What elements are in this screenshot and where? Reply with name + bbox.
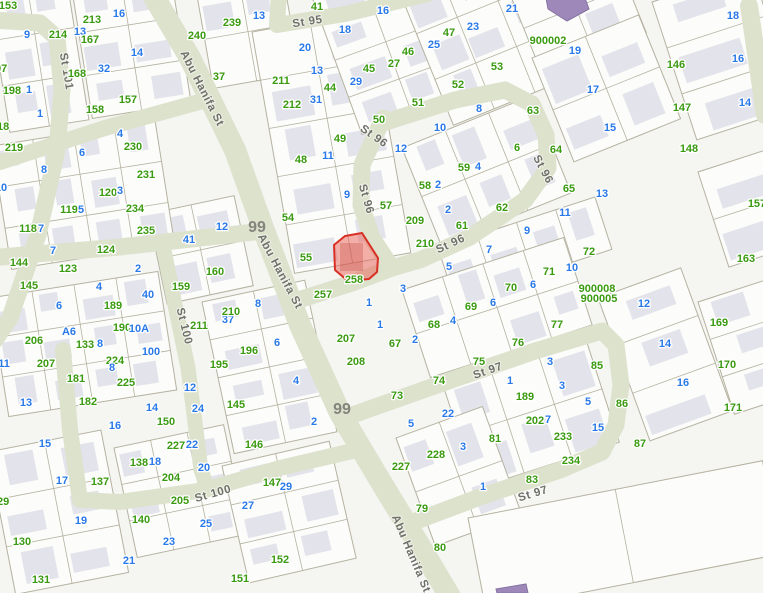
parcel-label: 3	[117, 185, 123, 197]
parcel-label: 100	[142, 346, 160, 358]
parcel-label: 18	[339, 24, 351, 36]
parcel-label: 41	[311, 1, 323, 13]
parcel-label: 72	[583, 246, 595, 258]
parcel-label: 45	[363, 63, 375, 75]
parcel-label: 8	[41, 164, 47, 176]
parcel-label: 147	[263, 477, 281, 489]
parcel-label: 14	[739, 97, 752, 109]
parcel-label: 6	[530, 279, 536, 291]
parcel-label: 212	[283, 99, 301, 111]
parcel-label: 10	[434, 122, 446, 134]
parcel-label: 27	[242, 500, 254, 512]
parcel-label: 9	[524, 225, 530, 237]
building-footprint	[15, 186, 37, 211]
parcel-label: 25	[428, 39, 440, 51]
parcel-label: 4	[450, 315, 457, 327]
parcel-label: 3	[400, 283, 406, 295]
parcel-label: 234	[562, 455, 581, 467]
parcel-label: 68	[428, 319, 440, 331]
parcel-label: 46	[402, 46, 414, 58]
parcel-label: 11	[322, 150, 334, 162]
parcel-label: 7	[38, 223, 44, 235]
parcel-label: 189	[104, 300, 122, 312]
parcel-label: 4	[117, 128, 124, 140]
parcel-label: 196	[240, 345, 258, 357]
parcel-label: 86	[616, 398, 628, 410]
parcel-label: 29	[350, 76, 362, 88]
parcel-label: 151	[231, 573, 249, 585]
parcel-label: 44	[324, 82, 337, 94]
parcel-label: 25	[200, 518, 212, 530]
parcel-label: 6	[79, 147, 85, 159]
parcel-label: 900005	[581, 293, 618, 305]
parcel-label: 1	[37, 108, 43, 120]
parcel-label: 120	[99, 187, 117, 199]
parcel-label: 146	[667, 59, 685, 71]
parcel-label: 7	[486, 244, 492, 256]
parcel-label: 15	[604, 122, 616, 134]
parcel-label: 2	[435, 179, 441, 191]
parcel-label: 207	[337, 333, 355, 345]
parcel-label: 19	[569, 45, 581, 57]
parcel-label: 24	[192, 403, 205, 415]
parcel-label: 158	[86, 104, 104, 116]
map-svg: St 101Abu Hanifa StAbu Hanifa StAbu Hani…	[0, 0, 763, 593]
parcel-label: 5	[585, 396, 591, 408]
parcel-label: 10	[0, 182, 7, 194]
parcel-label: 210	[416, 238, 434, 250]
parcel-label: 152	[271, 554, 289, 566]
parcel-label: 147	[673, 102, 691, 114]
parcel-label: 6	[56, 300, 62, 312]
parcel-label: 130	[13, 536, 31, 548]
parcel-label: 208	[347, 356, 365, 368]
building-footprint	[151, 72, 184, 99]
parcel-label: 63	[527, 105, 539, 117]
parcel-label: 80	[434, 542, 446, 554]
parcel-label: 170	[718, 359, 736, 371]
parcel-label: 54	[282, 212, 295, 224]
parcel-label: 230	[124, 141, 142, 153]
parcel-label: 5	[446, 261, 452, 273]
parcel-label: 124	[97, 244, 116, 256]
parcel-label: 11	[559, 207, 571, 219]
parcel-label: 29	[280, 481, 292, 493]
parcel-label: 5	[78, 204, 84, 216]
parcel-label: 157	[119, 94, 137, 106]
parcel-label: 181	[67, 373, 85, 385]
parcel-label: 14	[146, 402, 159, 414]
parcel-label: 41	[183, 234, 195, 246]
parcel-label: 167	[81, 34, 99, 46]
parcel-label: 16	[377, 5, 389, 17]
building-footprint	[5, 49, 36, 80]
parcel-label: 19	[75, 515, 87, 527]
parcel-label: 85	[591, 360, 603, 372]
parcel-label: 195	[210, 359, 228, 371]
parcel-label: 258	[345, 274, 363, 286]
parcel-label: 77	[551, 319, 563, 331]
parcel-label: 206	[25, 335, 43, 347]
parcel-label: 8	[109, 362, 115, 374]
parcel-label: 218	[0, 121, 9, 133]
map-canvas[interactable]: St 101Abu Hanifa StAbu Hanifa StAbu Hani…	[0, 0, 763, 593]
parcel-label: 71	[543, 266, 555, 278]
parcel-label: 75	[473, 356, 485, 368]
parcel-label: 15	[592, 422, 604, 434]
parcel-label: 1	[366, 297, 372, 309]
parcel-label: 171	[724, 402, 742, 414]
parcel-label: 15	[39, 438, 51, 450]
parcel-label: 16	[677, 377, 689, 389]
parcel-label: 53	[491, 61, 503, 73]
parcel-label: 138	[130, 457, 148, 469]
parcel-label: 21	[123, 555, 135, 567]
parcel-label: 12	[216, 221, 228, 233]
building-footprint	[4, 449, 38, 485]
parcel-label: 133	[76, 339, 94, 351]
parcel-label: 74	[433, 375, 446, 387]
parcel-label: 13	[253, 10, 265, 22]
parcel-label: 189	[516, 391, 534, 403]
parcel-label: 8	[97, 338, 103, 350]
parcel-label: 12	[395, 143, 407, 155]
parcel-label: 6	[490, 297, 496, 309]
parcel-label: 73	[391, 390, 403, 402]
parcel-label: 50	[373, 114, 385, 126]
parcel-label: 22	[186, 439, 198, 451]
parcel-label: 4	[293, 375, 300, 387]
parcel-label: 207	[37, 358, 55, 370]
parcel-label: 4	[96, 281, 103, 293]
parcel-label: 20	[198, 462, 210, 474]
parcel-label: 140	[132, 514, 150, 526]
parcel-label: 16	[732, 53, 744, 65]
parcel-label: 13	[311, 65, 323, 77]
parcel-label: 157	[748, 198, 763, 210]
parcel-label: 228	[427, 449, 445, 461]
parcel-label: 9	[24, 29, 30, 41]
highlighted-parcel-building	[340, 243, 363, 271]
parcel-label: 21	[506, 3, 518, 15]
parcel-label: 7	[545, 414, 551, 426]
parcel-label: 235	[137, 225, 155, 237]
parcel-label: 57	[380, 200, 392, 212]
parcel-label: 18	[149, 456, 161, 468]
parcel-label: 10	[566, 262, 578, 274]
parcel-label: 1	[480, 481, 486, 493]
parcel-label: 47	[443, 27, 455, 39]
parcel-label: 163	[737, 253, 755, 265]
parcel-label: 231	[137, 169, 155, 181]
parcel-label: 65	[563, 183, 575, 195]
parcel-label: 1	[507, 375, 513, 387]
parcel-label: 129	[0, 496, 9, 508]
parcel-label: 219	[5, 142, 23, 154]
parcel-label: 146	[245, 439, 263, 451]
building-footprint	[133, 361, 159, 386]
parcel-label: 211	[190, 320, 208, 332]
parcel-label: 168	[68, 68, 86, 80]
parcel-label: 233	[554, 431, 572, 443]
parcel-label: 144	[10, 257, 29, 269]
parcel-label: 202	[526, 415, 544, 427]
parcel-label: 23	[163, 536, 175, 548]
parcel-label: 137	[91, 476, 109, 488]
parcel-label: 8	[255, 298, 261, 310]
parcel-label: 159	[172, 281, 190, 293]
parcel-label: 17	[56, 475, 68, 487]
building-footprint	[285, 401, 313, 429]
parcel-label: 205	[171, 495, 189, 507]
parcel-label: 148	[680, 143, 698, 155]
parcel-label: 234	[126, 203, 145, 215]
parcel-label: 211	[272, 75, 290, 87]
parcel-label: 10A	[129, 323, 149, 335]
parcel-label: 14	[131, 47, 144, 59]
parcel-label: 900002	[530, 35, 567, 47]
parcel-label: 119	[60, 204, 78, 216]
parcel-label: 227	[392, 461, 410, 473]
parcel-label: 182	[79, 396, 97, 408]
parcel-label: 197	[0, 63, 7, 75]
parcel-label: 81	[489, 433, 501, 445]
parcel-label: 62	[496, 202, 508, 214]
parcel-label: 18	[727, 10, 739, 22]
parcel-label: 3	[460, 441, 466, 453]
parcel-label: 12	[638, 298, 650, 310]
parcel-label: 204	[162, 472, 181, 484]
parcel-label: 2	[311, 416, 317, 428]
parcel-label: 12	[184, 382, 196, 394]
parcel-label: 48	[295, 154, 307, 166]
parcel-label: 40	[142, 289, 154, 301]
parcel-label: 13	[596, 188, 608, 200]
parcel-label: 239	[223, 17, 241, 29]
parcel-label: 150	[157, 416, 175, 428]
parcel-label: 51	[412, 97, 424, 109]
parcel-label: 123	[59, 263, 77, 275]
parcel-label: 11	[0, 358, 10, 370]
parcel-label: 64	[550, 144, 563, 156]
parcel-label: 70	[505, 282, 517, 294]
parcel-label: 4	[475, 161, 482, 173]
parcel-label: 49	[334, 133, 346, 145]
parcel-label: 131	[32, 574, 50, 586]
parcel-label: 31	[310, 94, 322, 106]
parcel-label: 22	[442, 408, 454, 420]
route-label: 99	[333, 401, 351, 418]
parcel-label: 2	[445, 204, 451, 216]
parcel-label: 20	[299, 42, 311, 54]
parcel-label: 240	[188, 30, 206, 42]
parcel-label: 32	[98, 63, 110, 75]
parcel-label: 213	[83, 14, 101, 26]
parcel-label: 67	[389, 338, 401, 350]
parcel-label: 14	[659, 338, 672, 350]
building-footprint	[95, 367, 119, 387]
route-label: 99	[248, 219, 266, 236]
parcel-label: 76	[512, 337, 524, 349]
parcel-label: 69	[465, 301, 477, 313]
parcel-label: 7	[50, 245, 56, 257]
parcel-label: 13	[20, 397, 32, 409]
parcel-label: 6	[514, 142, 520, 154]
parcel-label: 214	[49, 29, 68, 41]
parcel-label: 9	[344, 189, 350, 201]
parcel-label: 160	[206, 266, 224, 278]
parcel-label: 118	[19, 223, 37, 235]
parcel-label: 153	[0, 0, 17, 12]
parcel-label: 2	[135, 263, 141, 275]
parcel-label: 55	[300, 252, 312, 264]
parcel-label: 2	[412, 334, 418, 346]
parcel-label: 58	[419, 180, 431, 192]
parcel-label: 6	[274, 337, 280, 349]
parcel-label: 87	[634, 438, 646, 450]
parcel-label: 1	[26, 84, 32, 96]
parcel-label: 79	[416, 503, 428, 515]
parcel-label: 16	[109, 420, 121, 432]
parcel-label: 16	[113, 8, 125, 20]
parcel-label: 145	[227, 399, 245, 411]
parcel-label: 145	[20, 280, 38, 292]
parcel-label: 17	[587, 84, 599, 96]
parcel-label: 225	[117, 377, 135, 389]
parcel-label: 257	[314, 289, 332, 301]
parcel-label: 23	[467, 21, 479, 33]
parcel-label: 83	[526, 474, 538, 486]
parcel-label: 210	[222, 306, 240, 318]
parcel-label: 59	[458, 162, 470, 174]
parcel-label: 37	[213, 71, 225, 83]
parcel-label: 27	[388, 58, 400, 70]
parcel-label: 5	[408, 418, 414, 430]
parcel-label: 3	[547, 356, 553, 368]
parcel-label: 8	[476, 103, 482, 115]
parcel-label: 209	[406, 215, 424, 227]
parcel-label: 198	[3, 85, 21, 97]
parcel-label: 227	[167, 440, 185, 452]
parcel-label: 169	[710, 317, 728, 329]
parcel-label: 1	[377, 319, 383, 331]
parcel-label: 52	[452, 79, 464, 91]
parcel-label: A6	[62, 326, 76, 338]
parcel-label: 61	[456, 220, 468, 232]
parcel-label: 3	[559, 380, 565, 392]
